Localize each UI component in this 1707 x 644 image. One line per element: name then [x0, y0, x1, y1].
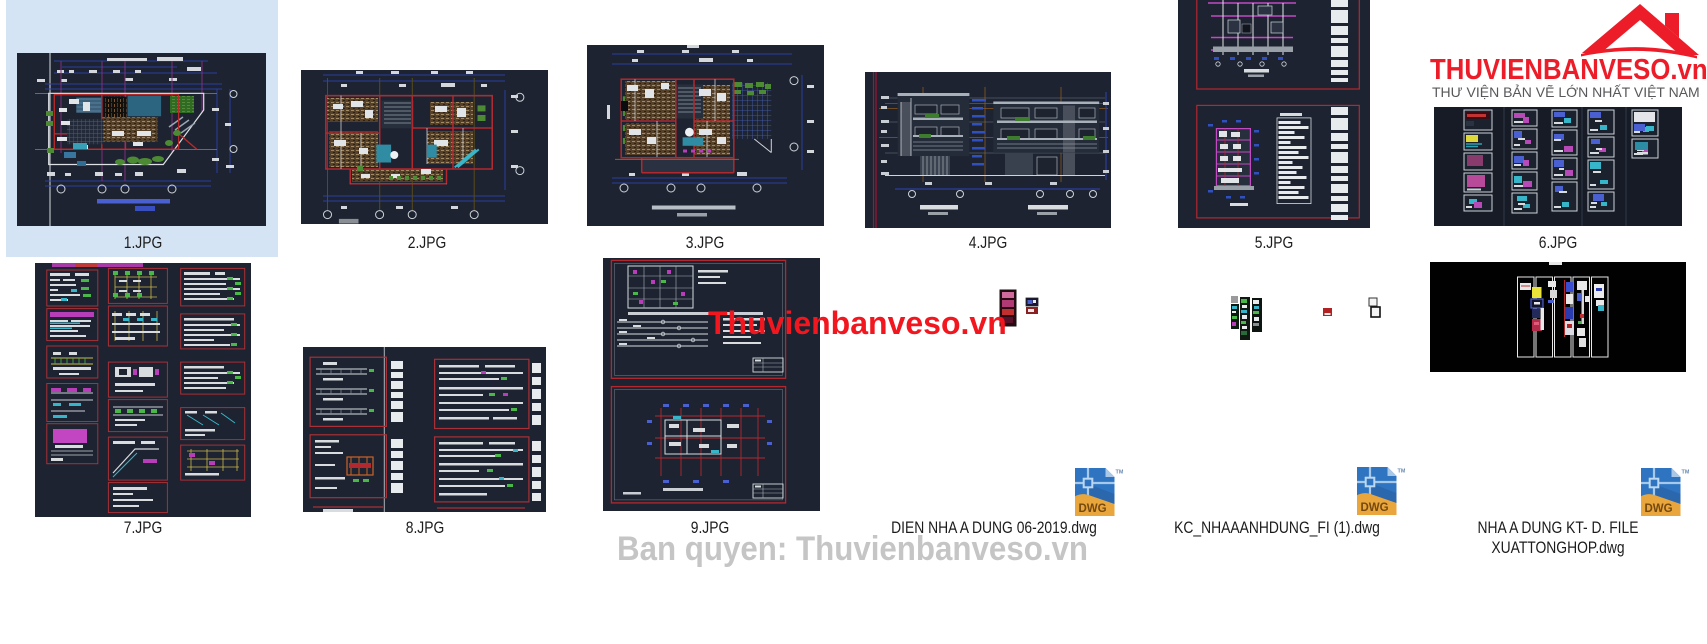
svg-text:TM: TM [1682, 470, 1690, 476]
svg-text:DWG: DWG [1361, 502, 1389, 514]
svg-text:TM: TM [1116, 470, 1124, 476]
svg-text:TM: TM [1398, 469, 1406, 475]
svg-text:DWG: DWG [1079, 503, 1107, 515]
svg-text:DWG: DWG [1645, 503, 1673, 515]
